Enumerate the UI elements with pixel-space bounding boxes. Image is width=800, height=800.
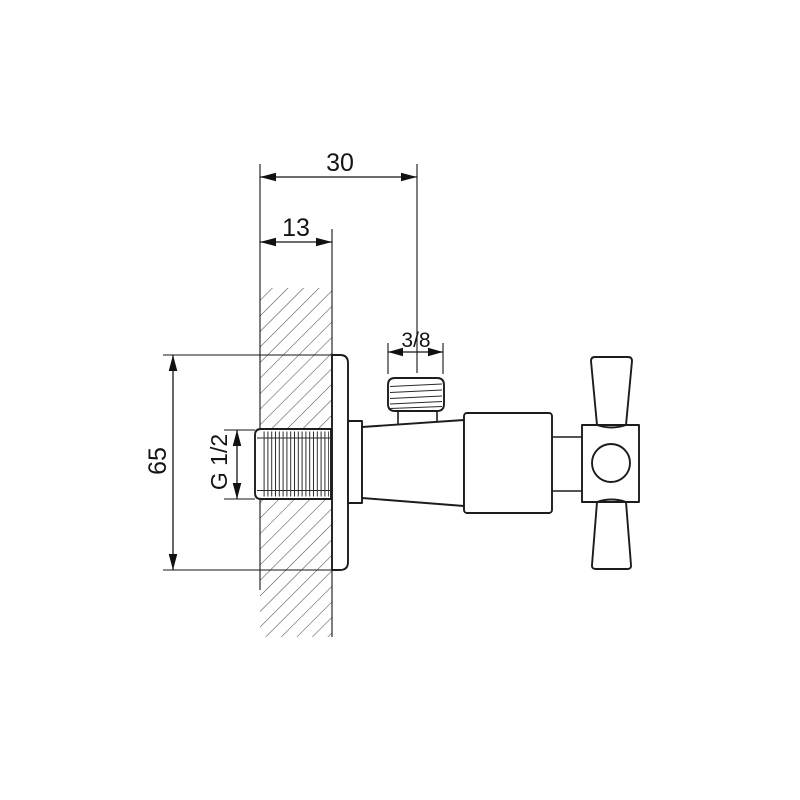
dimension-65-label: 65 — [144, 447, 172, 475]
body-cone — [362, 420, 464, 506]
inlet-pipe-thread-texture — [261, 432, 329, 497]
angle-valve-technical-drawing: 30 13 3/8 65 G 1/2 — [0, 0, 800, 800]
dimension-13: 13 — [260, 214, 332, 246]
body-block — [464, 413, 552, 513]
dimension-g12-label: G 1/2 — [206, 434, 232, 490]
arrow-up-icon — [233, 430, 242, 446]
arrow-down-icon — [169, 554, 178, 570]
arrow-left-icon — [260, 238, 276, 247]
arrow-up-icon — [169, 355, 178, 371]
valve-body — [348, 413, 582, 513]
arrow-right-icon — [316, 238, 332, 247]
outlet-port — [388, 378, 444, 424]
escutcheon-outline — [332, 355, 348, 570]
arrow-right-icon — [401, 173, 417, 182]
arrow-down-icon — [233, 483, 242, 499]
handle-hub-screw-circle — [592, 444, 630, 482]
handle-spoke-bottom — [592, 502, 631, 569]
drawing-canvas: 30 13 3/8 65 G 1/2 — [0, 0, 800, 800]
outlet-cap — [388, 378, 444, 411]
dimension-g12: G 1/2 — [206, 430, 255, 499]
dimension-30-label: 30 — [326, 149, 354, 177]
arrow-left-icon — [260, 173, 276, 182]
inlet-pipe — [255, 429, 331, 499]
dimension-3-8-label: 3/8 — [401, 329, 430, 352]
escutcheon-plate — [332, 355, 348, 570]
dimension-13-label: 13 — [282, 214, 310, 242]
dimension-3-8: 3/8 — [388, 329, 443, 374]
handle-spoke-top — [591, 357, 632, 425]
body-collar — [348, 421, 362, 503]
cross-handle — [582, 357, 639, 569]
